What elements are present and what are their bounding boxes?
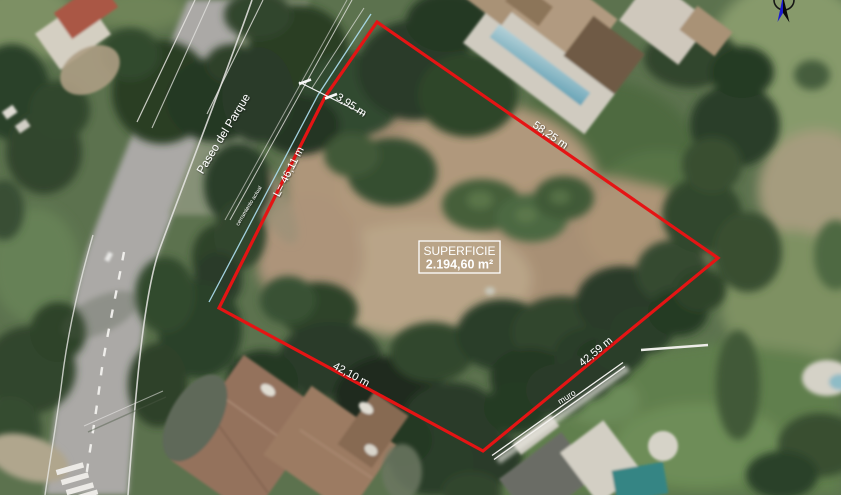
svg-text:SUPERFICIE: SUPERFICIE: [423, 244, 495, 258]
svg-text:2.194,60 m²: 2.194,60 m²: [426, 258, 493, 272]
